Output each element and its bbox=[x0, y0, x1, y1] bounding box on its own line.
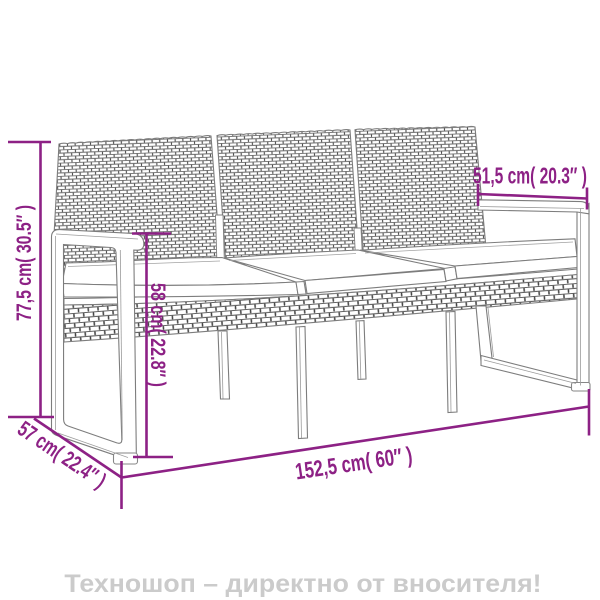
svg-text:51,5 cm( 20.3″ ): 51,5 cm( 20.3″ ) bbox=[473, 163, 587, 189]
svg-text:77,5 cm( 30.5″ ): 77,5 cm( 30.5″ ) bbox=[12, 205, 36, 321]
svg-text:Техношоп – директно от вносите: Техношоп – директно от вносителя! bbox=[64, 571, 541, 598]
svg-text:58 cm( 22.8″ ): 58 cm( 22.8″ ) bbox=[147, 283, 171, 387]
